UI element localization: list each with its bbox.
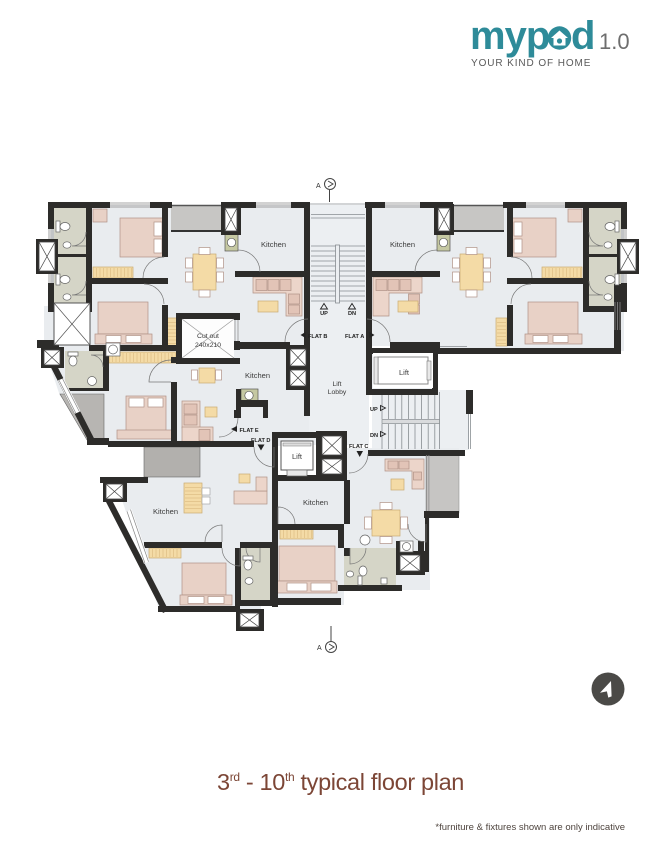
- svg-text:A: A: [316, 183, 321, 190]
- svg-text:myp: myp: [470, 14, 549, 58]
- svg-text:*furniture & fixtures shown ar: *furniture & fixtures shown are only ind…: [435, 822, 625, 833]
- svg-text:Lift: Lift: [399, 368, 410, 377]
- svg-text:Kitchen: Kitchen: [245, 371, 270, 380]
- svg-text:FLAT C: FLAT C: [349, 444, 368, 450]
- svg-text:YOUR KIND OF HOME: YOUR KIND OF HOME: [471, 58, 591, 69]
- svg-text:FLAT D: FLAT D: [251, 438, 270, 444]
- svg-text:Kitchen: Kitchen: [153, 507, 178, 516]
- svg-text:3rd - 10th typical floor plan: 3rd - 10th typical floor plan: [217, 769, 464, 795]
- svg-text:Lift: Lift: [292, 452, 303, 461]
- svg-text:UP: UP: [370, 407, 378, 413]
- svg-text:d: d: [571, 14, 595, 58]
- svg-text:Kitchen: Kitchen: [261, 240, 286, 249]
- svg-text:FLAT E: FLAT E: [240, 428, 259, 434]
- svg-text:1.0: 1.0: [599, 29, 630, 54]
- svg-text:240x210: 240x210: [195, 342, 221, 349]
- svg-text:Kitchen: Kitchen: [303, 498, 328, 507]
- svg-text:DN: DN: [348, 311, 356, 317]
- svg-text:Lobby: Lobby: [328, 389, 347, 396]
- svg-text:UP: UP: [320, 311, 328, 317]
- svg-text:FLAT B: FLAT B: [308, 334, 327, 340]
- svg-text:Lift: Lift: [332, 381, 341, 388]
- svg-text:A: A: [317, 645, 322, 652]
- svg-text:FLAT A: FLAT A: [345, 334, 364, 340]
- svg-text:Cut out: Cut out: [197, 333, 219, 340]
- svg-text:Kitchen: Kitchen: [390, 240, 415, 249]
- svg-text:DN: DN: [370, 433, 378, 439]
